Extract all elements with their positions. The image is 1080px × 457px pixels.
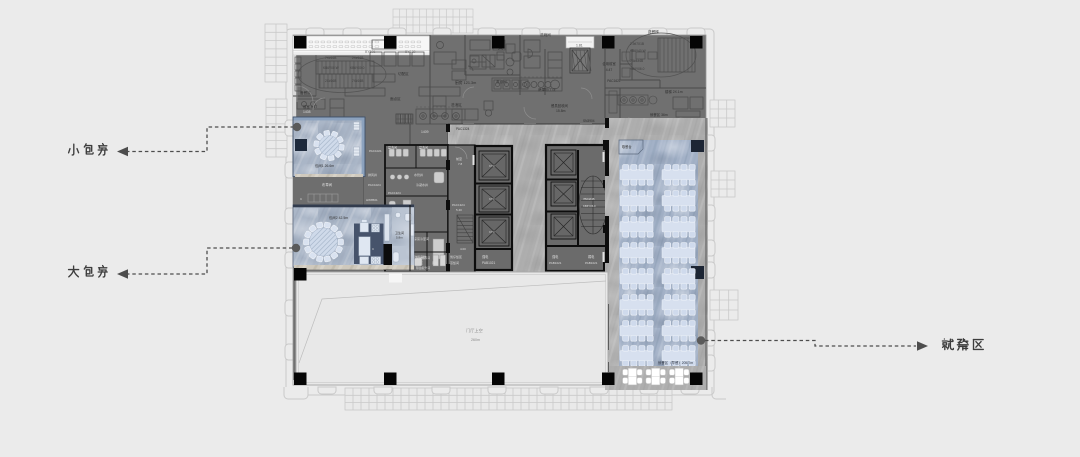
- svg-text:切配区: 切配区: [398, 71, 409, 76]
- svg-text:4.00: 4.00: [460, 247, 466, 251]
- svg-text:7X#16B: 7X#16B: [325, 56, 336, 60]
- svg-text:PAC1024: PAC1024: [368, 183, 381, 187]
- svg-text:就餐区（早餐）205.7m: 就餐区（早餐）205.7m: [658, 360, 693, 365]
- svg-text:2X#16B: 2X#16B: [352, 56, 363, 60]
- svg-text:蒸饭间: 蒸饭间: [450, 260, 459, 265]
- svg-text:强电: 强电: [552, 254, 559, 259]
- svg-text:合用前室: 合用前室: [602, 61, 616, 66]
- svg-text:1409: 1409: [421, 130, 429, 134]
- svg-text:盥洗间: 盥洗间: [388, 145, 397, 150]
- svg-text:布草间: 布草间: [322, 182, 333, 187]
- svg-text:前室: 前室: [456, 156, 462, 161]
- svg-text:PAB1021: PAB1021: [585, 261, 598, 265]
- svg-text:5.8m: 5.8m: [396, 236, 403, 240]
- svg-text:面点区: 面点区: [390, 96, 401, 101]
- svg-text:PAB1021: PAB1021: [482, 261, 495, 265]
- svg-text:煲仔饭区: 煲仔饭区: [450, 254, 462, 259]
- svg-text:洗消区: 洗消区: [451, 102, 462, 107]
- svg-text:冷凝水井: 冷凝水井: [416, 182, 428, 187]
- svg-text:门厅上空: 门厅上空: [466, 327, 483, 334]
- svg-text:PAC1621: PAC1621: [607, 79, 621, 83]
- svg-text:盥洗间: 盥洗间: [419, 145, 428, 150]
- svg-text:KT3: KT3: [489, 197, 495, 201]
- svg-text:PAC1324: PAC1324: [388, 191, 401, 195]
- svg-text:5.40: 5.40: [456, 208, 462, 212]
- svg-text:7X#16B: 7X#16B: [352, 79, 363, 83]
- svg-text:PAB1021: PAB1021: [549, 261, 562, 265]
- svg-text:废油脂存间: 废油脂存间: [416, 256, 430, 260]
- svg-text:PAC1021: PAC1021: [369, 149, 382, 153]
- svg-text:就餐区 36m: 就餐区 36m: [650, 112, 668, 117]
- svg-text:KB6Y00.0: KB6Y00.0: [350, 66, 365, 70]
- svg-text:隔油提升间: 隔油提升间: [416, 266, 430, 270]
- svg-text:KB6Y06.0: KB6Y06.0: [583, 204, 596, 208]
- svg-text:厨房 121.3m: 厨房 121.3m: [455, 80, 476, 85]
- svg-text:7.8: 7.8: [458, 162, 463, 166]
- svg-text:送餐梯: 送餐梯: [648, 29, 659, 34]
- svg-text:4.47: 4.47: [606, 68, 613, 72]
- svg-text:楼梯 2X.1m: 楼梯 2X.1m: [665, 89, 683, 94]
- svg-text:前室 4.17: 前室 4.17: [303, 104, 317, 109]
- svg-text:1408: 1408: [303, 110, 311, 114]
- svg-text:2.9#7X1B: 2.9#7X1B: [630, 42, 644, 46]
- svg-text:7B#4#4B: 7B#4#4B: [583, 197, 595, 201]
- svg-text:KT3: KT3: [489, 164, 495, 168]
- svg-text:强电: 强电: [482, 254, 489, 259]
- svg-text:KT3: KT3: [489, 230, 495, 234]
- svg-text:HW8501: HW8501: [366, 198, 378, 202]
- svg-text:15.8m: 15.8m: [556, 109, 566, 113]
- svg-text:SN3904: SN3904: [583, 119, 595, 123]
- svg-text:水管井: 水管井: [414, 172, 423, 177]
- svg-text:2X#16B: 2X#16B: [325, 79, 336, 83]
- svg-text:取餐台: 取餐台: [622, 144, 632, 149]
- svg-text:卫生间: 卫生间: [395, 230, 404, 235]
- svg-text:1.81: 1.81: [576, 44, 583, 48]
- svg-text:KB6Y00.W: KB6Y00.W: [323, 66, 339, 70]
- svg-text:PAC1324: PAC1324: [452, 203, 465, 207]
- svg-text:PAC1324: PAC1324: [456, 127, 470, 131]
- svg-text:排风井: 排风井: [368, 172, 377, 177]
- svg-text:风井: 风井: [432, 261, 438, 265]
- svg-text:260m: 260m: [471, 338, 480, 342]
- svg-text:洗碗间: 洗碗间: [540, 32, 551, 37]
- svg-text:餐具回收间: 餐具回收间: [551, 103, 569, 108]
- svg-text:包间2 42.5m: 包间2 42.5m: [329, 215, 348, 220]
- svg-text:包间1 26.6m: 包间1 26.6m: [315, 163, 334, 168]
- svg-text:凉菜冷荤间: 凉菜冷荤间: [414, 236, 429, 241]
- svg-text:弱电: 弱电: [588, 254, 595, 259]
